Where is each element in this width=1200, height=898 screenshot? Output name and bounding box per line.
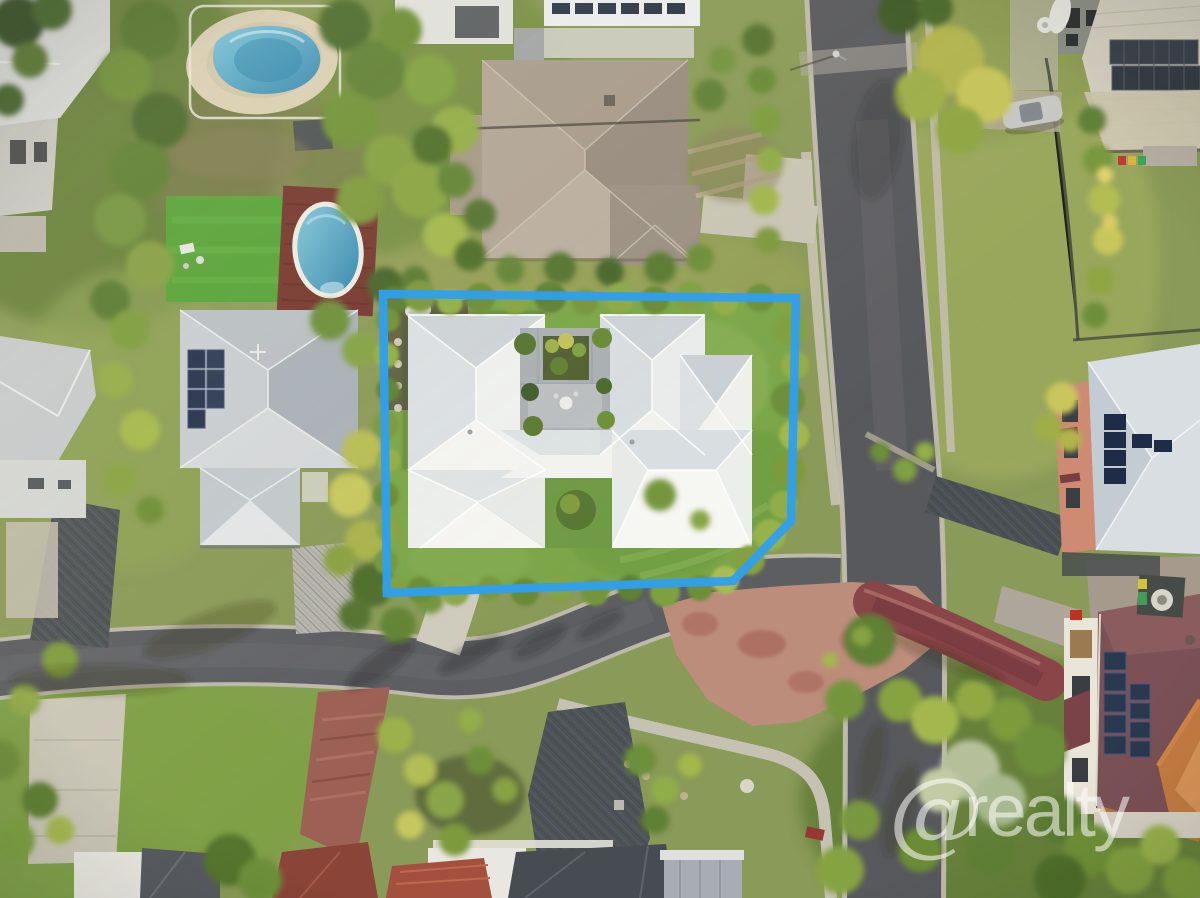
aerial-photo-canvas: @ realty xyxy=(0,0,1200,898)
vignette xyxy=(0,0,1200,898)
watermark: @ realty xyxy=(889,758,1130,867)
watermark-text: realty xyxy=(964,769,1130,852)
aerial-photo: @ realty xyxy=(0,0,1200,898)
